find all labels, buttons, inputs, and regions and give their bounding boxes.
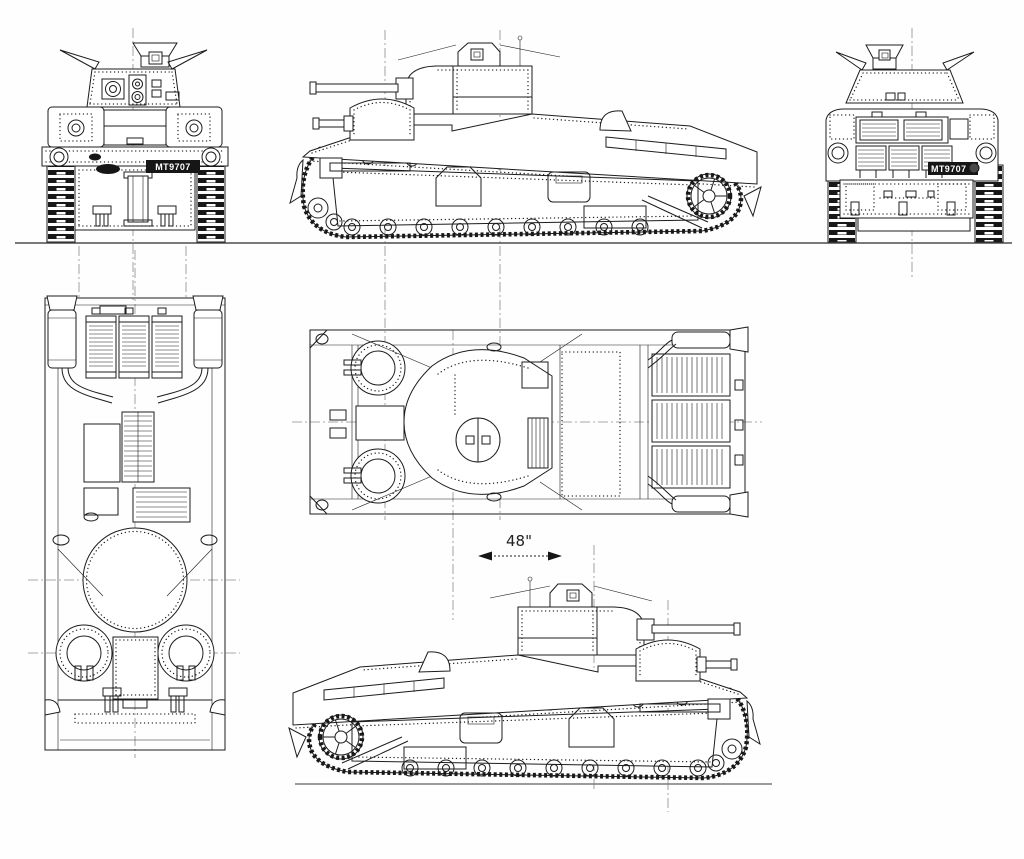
front-plate-text: MT9707 <box>155 162 190 172</box>
plan-rot-turret-ring <box>58 528 212 632</box>
left-side-view <box>290 36 761 237</box>
plan-engine-grilles <box>640 345 743 499</box>
plan-rot-grilles <box>86 306 182 378</box>
right-side-view <box>289 577 760 778</box>
rear-number-plate: MT9707 <box>928 162 979 175</box>
blueprint-drawing: MT9707 <box>0 0 1024 859</box>
dimension-label: 48" <box>506 532 532 550</box>
dimension-arrow-right <box>548 552 562 561</box>
front-view: MT9707 <box>42 43 228 242</box>
rear-turret-rails <box>836 52 974 70</box>
rear-cupola <box>866 45 903 69</box>
front-turret <box>87 69 180 107</box>
front-cupola <box>133 43 177 67</box>
rear-turret <box>846 70 963 103</box>
plan-turret <box>404 350 552 495</box>
front-number-plate: MT9707 <box>146 160 200 173</box>
plan-rot-sub-turrets <box>56 625 214 708</box>
front-turret-rails <box>60 50 207 69</box>
plan-view <box>310 327 748 517</box>
rear-view: MT9707 <box>826 45 1003 242</box>
rear-lower-hull <box>840 180 973 231</box>
rear-plate-text: MT9707 <box>931 164 966 174</box>
front-lower-hull <box>75 164 195 230</box>
rear-lamp <box>969 163 979 173</box>
dimension-arrow-left <box>478 552 492 561</box>
front-sub-turrets <box>48 107 222 147</box>
front-towing-post <box>128 176 148 222</box>
front-horn <box>96 164 120 174</box>
front-beam <box>42 147 228 166</box>
track-gauge-dimension: 48" <box>478 532 562 561</box>
blueprint-page: MT9707 <box>0 0 1024 859</box>
